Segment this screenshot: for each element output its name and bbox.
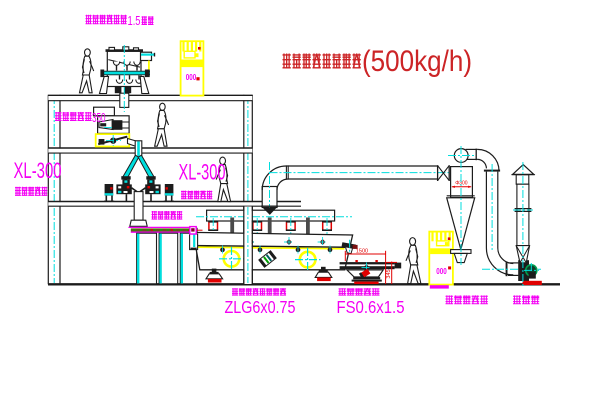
svg-text:XL-300: XL-300 bbox=[179, 160, 226, 185]
svg-text:FS0.6x1.5: FS0.6x1.5 bbox=[337, 297, 405, 317]
svg-text:000: 000 bbox=[436, 266, 447, 276]
svg-text:Φ300: Φ300 bbox=[455, 181, 468, 187]
svg-text:350: 350 bbox=[92, 111, 106, 125]
svg-text:ZLG6x0.75: ZLG6x0.75 bbox=[225, 297, 296, 317]
svg-text:1500: 1500 bbox=[356, 249, 368, 255]
svg-text:XL-300: XL-300 bbox=[14, 158, 62, 183]
svg-text:1.5: 1.5 bbox=[128, 13, 141, 28]
svg-text:345: 345 bbox=[386, 269, 392, 278]
svg-text:000: 000 bbox=[186, 72, 197, 82]
svg-text:(500kg/h): (500kg/h) bbox=[362, 45, 472, 78]
